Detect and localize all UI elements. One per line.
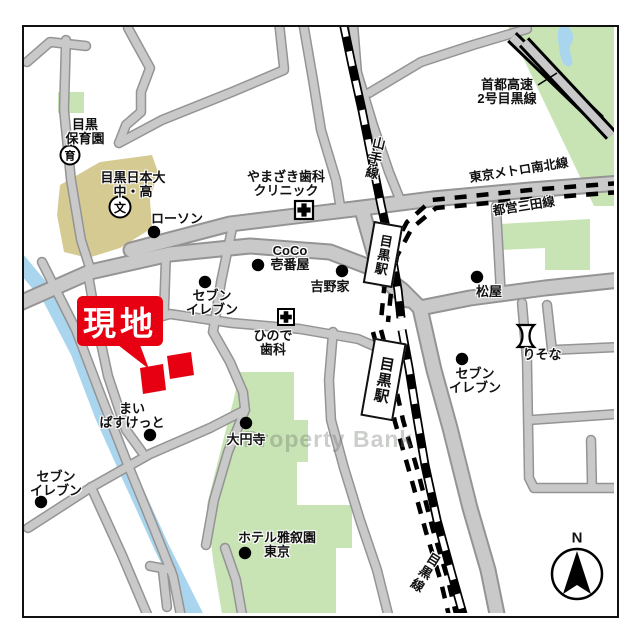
- label-meguro-nihon-univ-school: 目黒日本大中・高: [100, 171, 165, 199]
- compass-north-label: N: [572, 530, 583, 547]
- compass-icon: [552, 549, 602, 599]
- label-coco-ichibanya: CoCo壱番屋: [270, 244, 309, 272]
- watermark: Property Bank: [243, 426, 413, 453]
- label-seven-eleven-center: セブンイレブン: [186, 289, 238, 317]
- label-daienji: 大円寺: [226, 433, 265, 447]
- school-icon: 文: [110, 197, 131, 218]
- label-matsuya: 松屋: [476, 285, 502, 299]
- poi-dot-seven-eleven-center: [199, 276, 211, 288]
- poi-dot-seven-eleven-east: [456, 353, 468, 365]
- poi-dot-lawson: [148, 226, 160, 238]
- label-seven-eleven-southwest: セブンイレブン: [30, 470, 82, 498]
- poi-dot-matsuya: [471, 271, 483, 283]
- label-yoshinoya: 吉野家: [310, 280, 349, 294]
- hospital-icon-hinode: [278, 309, 294, 325]
- label-meguro-hoikuen: 目黒保育園: [65, 118, 104, 146]
- poi-dot-yoshinoya: [336, 265, 348, 277]
- site-building: [118, 345, 194, 394]
- label-hotel-gajoen: ホテル雅叙園東京: [238, 531, 316, 559]
- svg-text:文: 文: [114, 200, 127, 215]
- svg-text:育: 育: [65, 149, 76, 163]
- label-seven-eleven-east: セブンイレブン: [449, 367, 501, 395]
- label-lawson: ローソン: [151, 212, 203, 226]
- label-hinode-dental: ひので歯科: [253, 329, 292, 357]
- poi-dot-my-basket: [144, 429, 156, 441]
- map-canvas: 育 文 Property Bank 目黒駅 目黒駅 現地 山手線 目黒線 東京メ…: [0, 0, 640, 640]
- hospital-icon-yamazaki: [295, 201, 313, 219]
- label-resona: りそな: [522, 348, 561, 362]
- label-shuto-expressway: 首都高速 2号目黒線: [470, 78, 544, 107]
- nursery-icon: 育: [61, 146, 80, 165]
- site-marker-label: 現地: [83, 297, 157, 345]
- label-shuto-line1: 首都高速: [481, 77, 533, 92]
- poi-dot-coco-ichibanya: [252, 259, 264, 271]
- label-shuto-line2: 2号目黒線: [477, 91, 536, 106]
- label-yamazaki-dental: やまざき歯科クリニック: [247, 170, 325, 198]
- label-my-basket: まいぱすけっと: [99, 402, 164, 430]
- site-marker: 現地: [77, 296, 163, 346]
